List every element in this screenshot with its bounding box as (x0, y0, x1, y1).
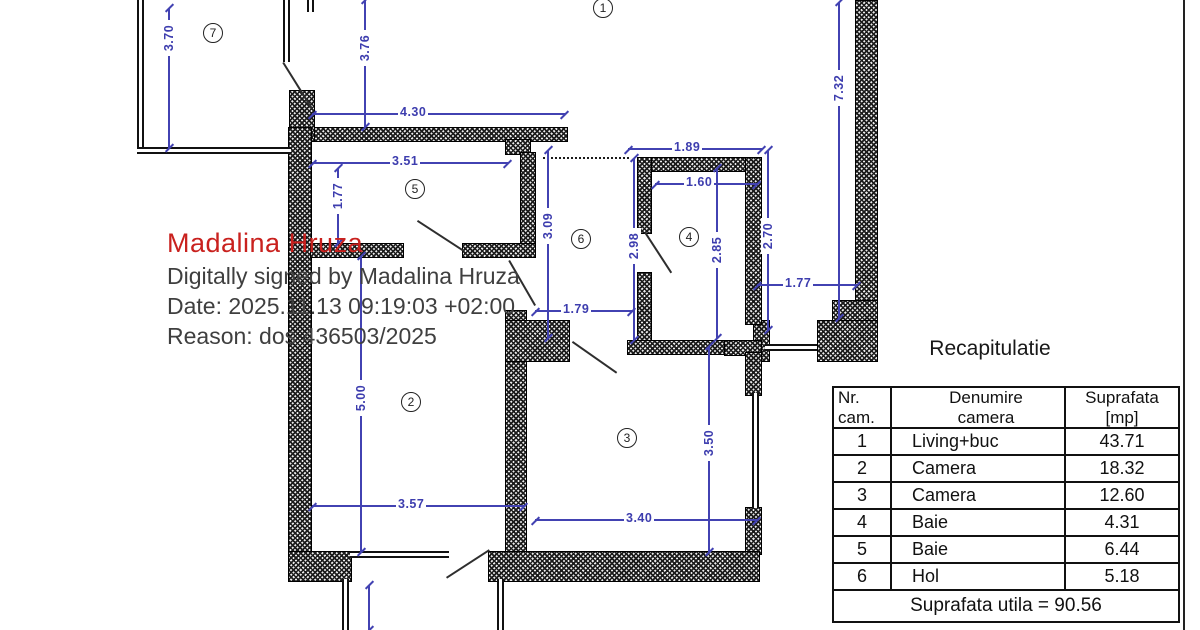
wall-left (288, 127, 312, 582)
room-number-3: 3 (617, 428, 637, 448)
cell-nr: 3 (833, 482, 891, 509)
floor-plan-document-page: 4.30 3.51 1.89 1.60 1.77 1.79 3.57 3.40 … (0, 0, 1200, 630)
door-leaf-room4 (644, 232, 672, 273)
dimension-label: 3.70 (162, 20, 176, 56)
cell-name: Camera (891, 482, 1065, 509)
header-area-line1: Suprafata (1070, 388, 1174, 408)
dimension-label: 2.98 (627, 228, 641, 264)
wall-room4-left-lower (637, 272, 652, 347)
dimension-label: 4.30 (398, 105, 428, 119)
dimension-label: 3.57 (396, 497, 426, 511)
header-nr-line2: cam. (838, 408, 886, 428)
room-number-6: 6 (571, 229, 591, 249)
cell-area: 12.60 (1065, 482, 1179, 509)
window-room2-bottom (350, 551, 449, 558)
dimension-label: 2.70 (761, 218, 775, 254)
dimension-label: 1.89 (672, 140, 702, 154)
room-number-2: 2 (401, 392, 421, 412)
cell-area: 6.44 (1065, 536, 1179, 563)
window-entry (765, 344, 817, 351)
cell-area: 4.31 (1065, 509, 1179, 536)
wall-room4-top (637, 157, 762, 172)
dimension-label: 7.32 (832, 70, 846, 106)
signature-date: Date: 2025.11.13 09:19:03 +02:00 (167, 293, 520, 320)
cell-area: 18.32 (1065, 455, 1179, 482)
dimension-line (312, 113, 565, 115)
wall-entry-right-block (817, 320, 878, 362)
cell-nr: 4 (833, 509, 891, 536)
cell-area: 43.71 (1065, 428, 1179, 455)
dimension-label: 3.51 (390, 154, 420, 168)
signature-name: Madalina Hruza (167, 228, 520, 260)
room-number-4: 4 (679, 227, 699, 247)
wall-right (855, 0, 878, 307)
window-balcony7-bottom (137, 147, 291, 154)
header-denumire: Denumire camera (891, 387, 1065, 428)
dimension-label: 3.09 (541, 208, 555, 244)
door-leaf-room3 (572, 341, 617, 374)
wall-bottom-left (288, 551, 352, 582)
room-number-7: 7 (203, 23, 223, 43)
dimension-label: 2.85 (710, 232, 724, 268)
window-balcony7-left (137, 0, 144, 150)
wall-room3-right-upper (745, 352, 762, 396)
wall-top-stub (307, 0, 314, 12)
cell-name: Baie (891, 536, 1065, 563)
dashed-opening-line (543, 157, 629, 159)
cell-name: Hol (891, 563, 1065, 590)
cell-nr: 1 (833, 428, 891, 455)
recap-title: Recapitulatie (905, 337, 1075, 361)
sheet-border-line (1183, 0, 1185, 630)
recap-table: Nr. cam. Denumire camera Suprafata [mp] … (832, 386, 1180, 623)
door-leaf-balcony-bottom (446, 549, 490, 578)
table-row: 4 Baie 4.31 (833, 509, 1179, 536)
dimension-label: 3.40 (624, 511, 654, 525)
dimension-label: 1.60 (684, 175, 714, 189)
dimension-line (547, 150, 549, 338)
table-row: 2 Camera 18.32 (833, 455, 1179, 482)
digital-signature-stamp: Madalina Hruza Digitally signed by Madal… (167, 228, 520, 350)
signature-reason: Reason: dos 436503/2025 (167, 323, 520, 350)
dimension-label: 3.50 (702, 425, 716, 461)
room-number-5: 5 (405, 179, 425, 199)
table-row: 6 Hol 5.18 (833, 563, 1179, 590)
dimension-line (838, 2, 840, 318)
dimension-label: 5.00 (354, 380, 368, 416)
table-row: 5 Baie 6.44 (833, 536, 1179, 563)
rail-balcony-bottom-left (342, 579, 349, 630)
dimension-line (368, 585, 370, 630)
wall-room1-left-stub (283, 0, 290, 62)
cell-name: Living+buc (891, 428, 1065, 455)
cell-name: Camera (891, 455, 1065, 482)
table-row: 3 Camera 12.60 (833, 482, 1179, 509)
room-number-1: 1 (593, 0, 613, 18)
header-name-line1: Denumire (912, 388, 1060, 408)
cell-name: Baie (891, 509, 1065, 536)
wall-room3-right-lower (745, 507, 762, 555)
cell-nr: 5 (833, 536, 891, 563)
rail-balcony-bottom-right (497, 579, 504, 630)
recap-footer-row: Suprafata utila = 90.56 (833, 590, 1179, 622)
wall-room5-room6 (520, 152, 536, 245)
table-row: 1 Living+buc 43.71 (833, 428, 1179, 455)
cell-nr: 2 (833, 455, 891, 482)
header-nr-line1: Nr. (838, 388, 886, 408)
signature-line1: Digitally signed by Madalina Hruza (167, 263, 520, 290)
total-area: Suprafata utila = 90.56 (833, 590, 1179, 622)
dimension-label: 1.77 (783, 276, 813, 290)
header-suprafata: Suprafata [mp] (1065, 387, 1179, 428)
header-area-line2: [mp] (1070, 408, 1174, 428)
dimension-label: 3.76 (358, 30, 372, 66)
cell-nr: 6 (833, 563, 891, 590)
recap-header-row: Nr. cam. Denumire camera Suprafata [mp] (833, 387, 1179, 428)
window-room3-right (752, 393, 759, 508)
cell-area: 5.18 (1065, 563, 1179, 590)
wall-bottom-right (488, 551, 760, 582)
dimension-label: 1.79 (561, 302, 591, 316)
dimension-label: 1.77 (331, 178, 345, 214)
header-name-line2: camera (912, 408, 1060, 428)
wall-room4-left-upper (637, 157, 652, 234)
header-nr-cam: Nr. cam. (833, 387, 891, 428)
